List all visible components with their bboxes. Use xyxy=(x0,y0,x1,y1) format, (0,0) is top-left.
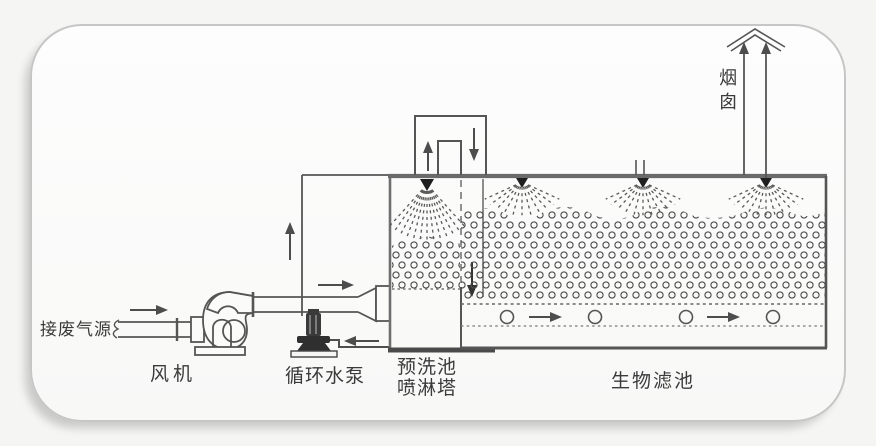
waste-gas-source-label: 接废气源 xyxy=(40,320,112,339)
plenum-flow-arrow-icon xyxy=(529,312,562,322)
fan-discharge-duct xyxy=(254,286,390,321)
pump-riser-arrow-icon xyxy=(285,222,295,260)
pump-suction-arrow-icon xyxy=(344,336,379,346)
waste-gas-inlet-pipe xyxy=(113,318,193,341)
crossover-up-arrow-icon xyxy=(423,141,433,171)
biofilter-media-bed xyxy=(461,207,825,301)
screenshot-stage: 接废气源 风机 循环水泵 预洗池 喷淋塔 生物滤池 烟囱 xyxy=(0,0,876,446)
fan-label: 风机 xyxy=(150,364,196,385)
circulating-pump-drawing xyxy=(291,175,390,357)
biofilter-label: 生物滤池 xyxy=(611,371,695,392)
pump-label: 循环水泵 xyxy=(285,366,365,387)
crossover-duct xyxy=(415,116,486,175)
plenum-flow-arrow-icon xyxy=(707,312,740,322)
tower-media-bed xyxy=(392,237,460,289)
duct-flow-arrow-icon xyxy=(318,280,354,290)
chimney-label: 烟囱 xyxy=(717,68,737,116)
centrifugal-fan-drawing xyxy=(191,292,253,355)
tower-spray-nozzle-icon xyxy=(420,179,434,191)
tower-spray-fan xyxy=(389,190,464,241)
prewash-spray-tower-label: 预洗池 喷淋塔 xyxy=(397,357,457,400)
crossover-down-arrow-icon xyxy=(469,128,479,161)
inlet-flow-arrow-icon xyxy=(130,305,168,315)
